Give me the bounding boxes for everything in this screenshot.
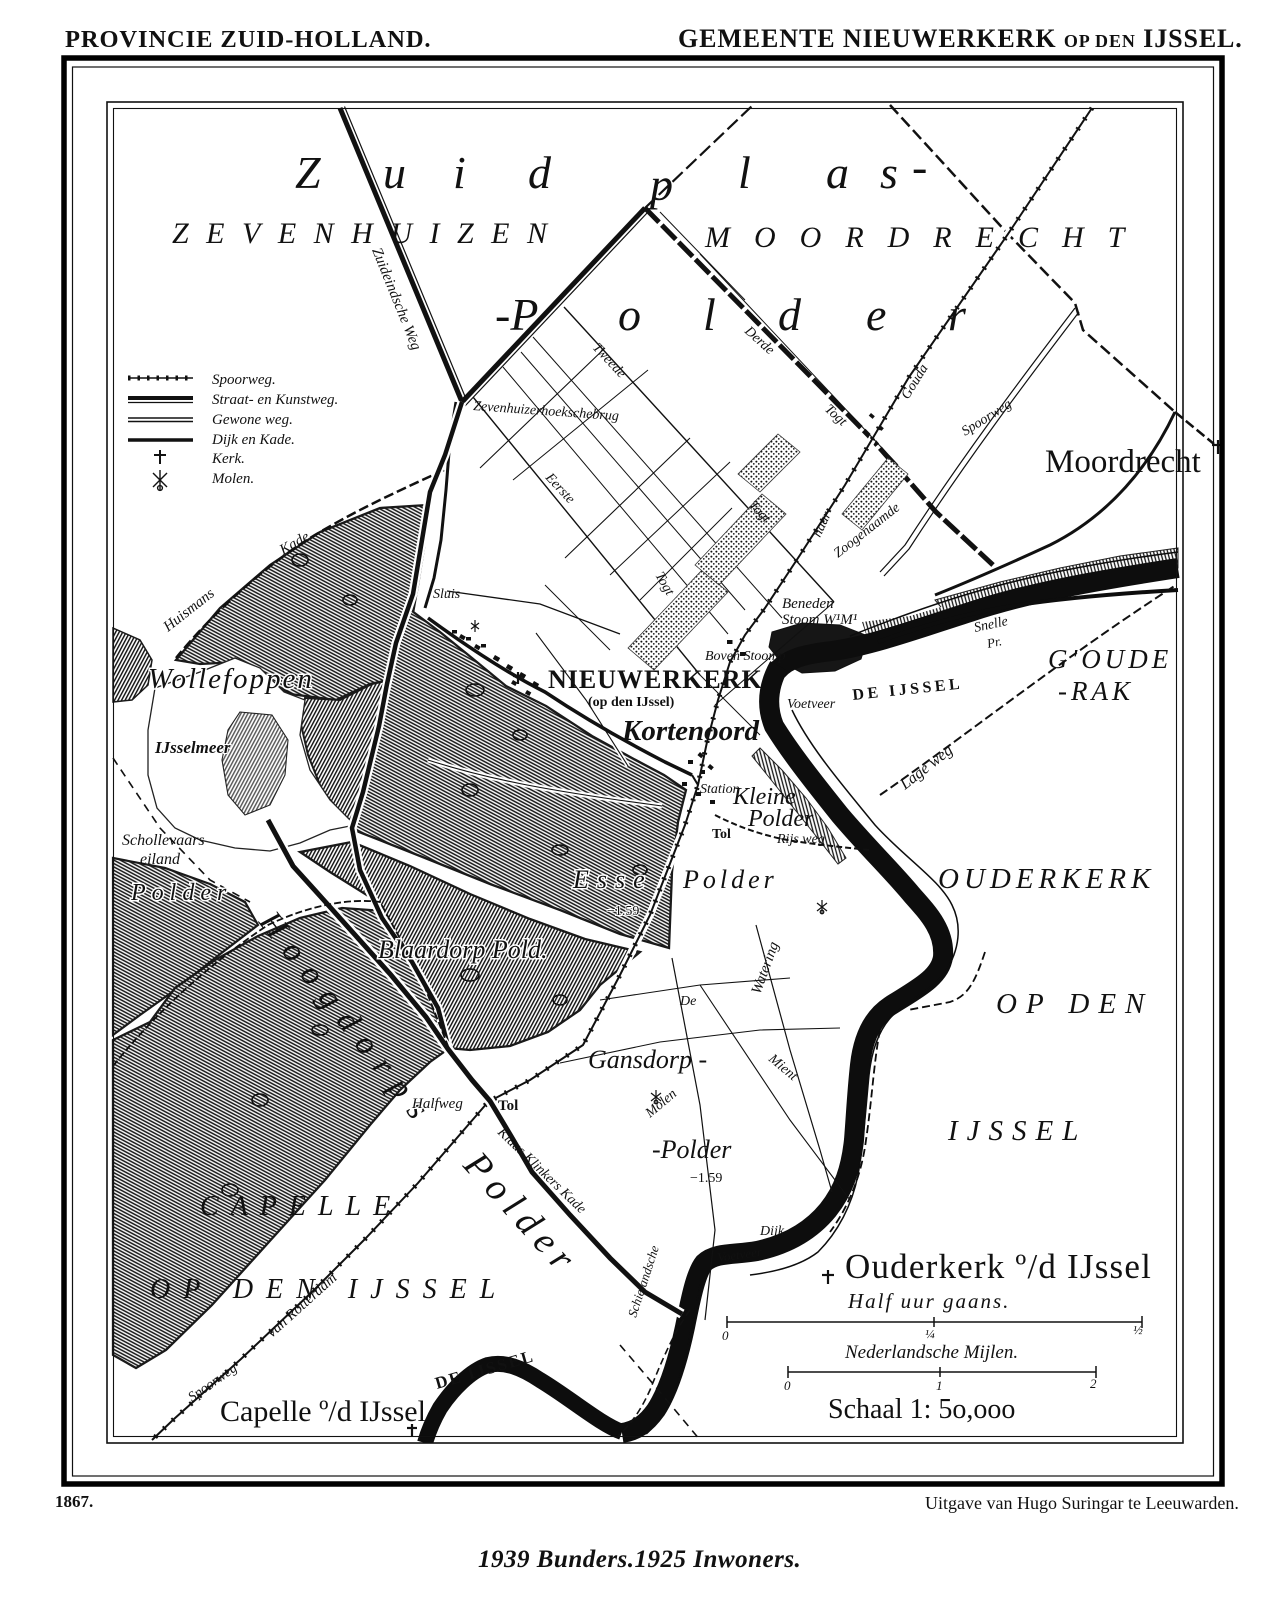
svg-text:Gewone weg.: Gewone weg. xyxy=(212,412,293,428)
svg-text:Gansdorp -: Gansdorp - xyxy=(588,1045,707,1074)
svg-text:0: 0 xyxy=(722,1328,729,1343)
svg-text:1939 Bunders.1925 Inwoners.: 1939 Bunders.1925 Inwoners. xyxy=(478,1546,801,1573)
svg-text:Station: Station xyxy=(700,782,740,797)
svg-text:Sluis: Sluis xyxy=(433,587,461,602)
svg-text:1867.: 1867. xyxy=(55,1492,93,1511)
svg-text:s: s xyxy=(880,147,898,198)
svg-text:a: a xyxy=(826,147,849,198)
svg-text:CAPELLE: CAPELLE xyxy=(200,1191,402,1222)
svg-text:Capelle º/d IJssel: Capelle º/d IJssel xyxy=(220,1395,426,1428)
svg-text:Beneden: Beneden xyxy=(782,596,834,612)
svg-text:Spoorweg: Spoorweg xyxy=(959,397,1014,439)
svg-text:-: - xyxy=(912,141,927,192)
svg-text:Tweede: Tweede xyxy=(589,340,628,381)
svg-text:Kerk.: Kerk. xyxy=(211,451,245,467)
svg-text:-P: -P xyxy=(495,289,538,340)
svg-text:Stoom W¹M¹: Stoom W¹M¹ xyxy=(782,612,858,628)
svg-text:Rijs weg: Rijs weg xyxy=(776,832,825,847)
svg-text:l: l xyxy=(703,289,716,340)
svg-text:G'OUDE -: G'OUDE - xyxy=(1048,644,1196,674)
svg-text:Pr.: Pr. xyxy=(985,633,1004,651)
svg-text:NIEUWERKERK: NIEUWERKERK xyxy=(548,665,763,694)
svg-text:(op den IJssel): (op den IJssel) xyxy=(588,695,675,710)
svg-text:eiland: eiland xyxy=(140,851,181,868)
svg-text:Dijk en Kade.: Dijk en Kade. xyxy=(211,432,295,448)
svg-text:Mient: Mient xyxy=(765,1051,801,1085)
svg-text:OUDERKERK: OUDERKERK xyxy=(938,863,1155,895)
svg-text:Derde: Derde xyxy=(741,323,777,358)
svg-text:l: l xyxy=(738,147,751,198)
svg-text:Nederlandsche Mijlen.: Nederlandsche Mijlen. xyxy=(844,1342,1018,1363)
svg-text:De: De xyxy=(679,994,696,1009)
svg-text:Polder: Polder xyxy=(130,880,232,906)
svg-text:2: 2 xyxy=(1090,1376,1097,1391)
svg-text:Kortenoord: Kortenoord xyxy=(621,715,759,747)
svg-text:½: ½ xyxy=(1133,1322,1143,1337)
svg-text:−1.59: −1.59 xyxy=(690,1171,722,1186)
svg-text:Ouderkerk º/d IJssel: Ouderkerk º/d IJssel xyxy=(845,1247,1152,1286)
svg-text:DE IJSSEL: DE IJSSEL xyxy=(852,675,964,704)
svg-text:u: u xyxy=(383,147,406,198)
svg-text:Polder: Polder xyxy=(747,806,814,832)
svg-text:Straat- en Kunstweg.: Straat- en Kunstweg. xyxy=(212,392,338,408)
svg-text:Wollefoppen: Wollefoppen xyxy=(148,663,314,695)
svg-text:Watering: Watering xyxy=(749,939,783,996)
svg-text:e: e xyxy=(866,289,886,340)
svg-text:p: p xyxy=(647,159,673,210)
svg-text:Zuideindsche Weg: Zuideindsche Weg xyxy=(368,246,424,354)
svg-text:Lage weg: Lage weg xyxy=(896,742,956,794)
svg-text:d: d xyxy=(778,289,802,340)
svg-text:Tol: Tol xyxy=(498,1098,518,1114)
svg-text:Uitgave van Hugo Suringar te L: Uitgave van Hugo Suringar te Leeuwarden. xyxy=(925,1493,1239,1513)
svg-text:Zevenhuizerhoekschebrug: Zevenhuizerhoekschebrug xyxy=(473,399,620,424)
svg-text:Esse: Esse xyxy=(572,865,653,894)
svg-text:IJsselmeer: IJsselmeer xyxy=(154,738,231,757)
svg-text:Dijk: Dijk xyxy=(759,1224,785,1239)
svg-text:Togt: Togt xyxy=(821,402,850,430)
svg-text:ZEVENHUIZEN: ZEVENHUIZEN xyxy=(172,217,565,250)
svg-text:PROVINCIE ZUID-HOLLAND.: PROVINCIE ZUID-HOLLAND. xyxy=(65,26,431,53)
svg-text:OP DEN: OP DEN xyxy=(996,988,1153,1020)
svg-text:Z: Z xyxy=(295,147,321,198)
svg-text:Schaal 1: 5o,ooo: Schaal 1: 5o,ooo xyxy=(828,1394,1015,1425)
svg-text:IJSSEL: IJSSEL xyxy=(947,1115,1087,1147)
svg-text:Schollevaars: Schollevaars xyxy=(122,832,205,849)
svg-text:Polder: Polder xyxy=(682,865,778,894)
svg-text:Tol: Tol xyxy=(712,827,731,842)
svg-text:Half uur gaans.: Half uur gaans. xyxy=(847,1289,1010,1313)
svg-text:0: 0 xyxy=(784,1378,791,1393)
svg-text:Molen: Molen xyxy=(642,1087,680,1122)
svg-text:-Polder: -Polder xyxy=(652,1135,732,1164)
svg-text:Blaardorp Pold.: Blaardorp Pold. xyxy=(378,935,547,964)
svg-text:Molen.: Molen. xyxy=(211,471,254,487)
svg-text:MOORDRECHT: MOORDRECHT xyxy=(704,221,1148,254)
svg-text:GEMEENTE NIEUWERKERK OP DEN IJ: GEMEENTE NIEUWERKERK OP DEN IJSSEL. xyxy=(678,24,1243,53)
svg-text:1: 1 xyxy=(936,1378,943,1393)
svg-text:Moordrecht: Moordrecht xyxy=(1045,444,1201,480)
svg-text:d: d xyxy=(528,147,552,198)
svg-text:o: o xyxy=(618,289,641,340)
svg-text:i: i xyxy=(453,147,466,198)
svg-text:r: r xyxy=(948,289,967,340)
svg-text:Boven Stoomp: Boven Stoomp xyxy=(705,649,785,664)
svg-text:¼: ¼ xyxy=(925,1326,935,1341)
svg-text:Halfweg: Halfweg xyxy=(411,1096,463,1112)
svg-text:Spoorweg.: Spoorweg. xyxy=(212,372,276,388)
svg-text:−1.59: −1.59 xyxy=(607,904,639,919)
svg-text:Voetveer: Voetveer xyxy=(787,697,836,712)
svg-text:-RAK: -RAK xyxy=(1058,676,1134,706)
